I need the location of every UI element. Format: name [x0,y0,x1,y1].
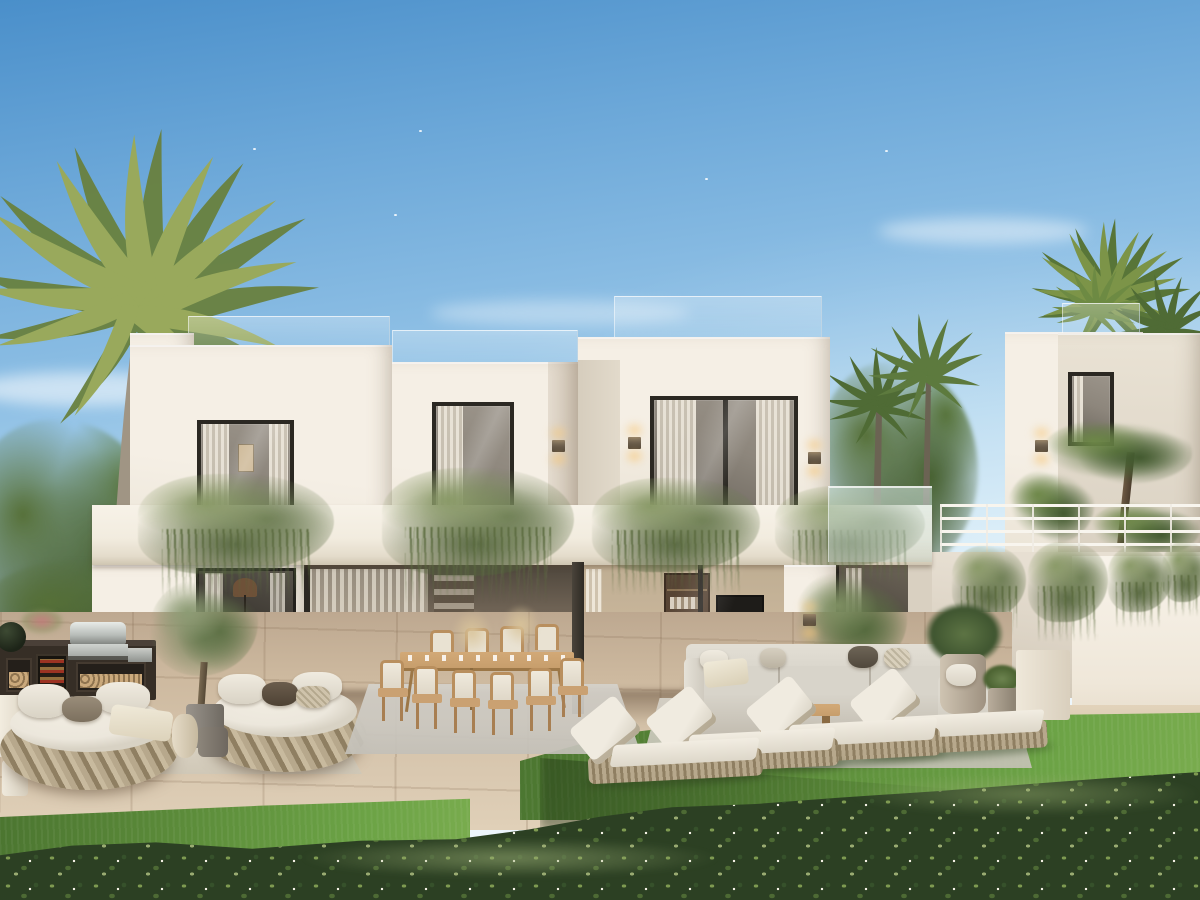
pillow-textured [296,686,330,708]
chair-leg [562,695,565,717]
hedge-highlight [850,772,1200,816]
chair-seat [526,696,556,705]
dining-chair [528,668,552,698]
chair-leg [510,709,513,735]
pillow [760,648,786,668]
chair-leg [548,705,551,731]
balcony-trailing-plants [382,468,574,576]
pillow-brown [262,682,298,706]
chair-seat [378,688,408,697]
chair-seat [558,686,588,695]
dining-chair [452,670,476,700]
bbq-grill-hood [70,622,126,644]
pampas-grass [502,604,540,646]
bbq-grill-body [68,644,128,660]
chair-leg [472,707,475,733]
wall-sconce [628,437,641,449]
pillow-taupe [62,696,102,722]
rooftop-glass-balustrade [392,330,578,363]
neighbour-rooftop-glass [1062,303,1140,333]
chair-seat [412,694,442,703]
side-burner [128,648,152,662]
sun-lounger [580,715,764,806]
pillow [218,674,266,704]
wall-sconce [803,614,816,626]
wall-sconce [552,440,565,452]
chair-leg [492,709,495,735]
wall-sconce [1035,440,1048,452]
pampas-grass [452,610,492,654]
wall-sconce [808,452,821,464]
dining-chair [380,660,404,690]
oleander-flowers [20,608,64,634]
table-setting [408,655,566,661]
hanging-plants [1162,542,1200,602]
chair-seat [488,700,518,709]
stone-pine-canopy [1042,418,1192,484]
round-wicker-daybed [0,682,178,790]
rooftop-glass-balustrade [188,316,390,346]
balcony-trailing-plants [592,478,760,572]
hedge-highlight [300,838,720,878]
rooftop-glass-balustrade [614,296,822,338]
chair-leg [382,697,385,721]
balcony-trailing-plants [138,474,334,574]
pillow [946,664,976,686]
chair-leg [530,705,533,731]
chair-leg [416,703,419,729]
throw-blanket [703,658,749,688]
chair-leg [578,695,581,717]
villa-rendering [0,0,1200,900]
chair-leg [400,697,403,721]
chair-leg [434,703,437,729]
balcony-glass-balustrade [828,486,932,562]
stone-side-table [198,727,228,757]
chair-leg [454,707,457,733]
pillow-dark [848,646,878,668]
chair-seat [450,698,480,707]
hanging-plants [1028,542,1108,622]
dining-chair [414,666,438,696]
dining-chair [490,672,514,702]
ceramic-side-table [172,714,198,758]
round-wicker-daybed [204,672,366,772]
dining-chair [560,658,584,688]
pillow-textured [884,648,910,668]
